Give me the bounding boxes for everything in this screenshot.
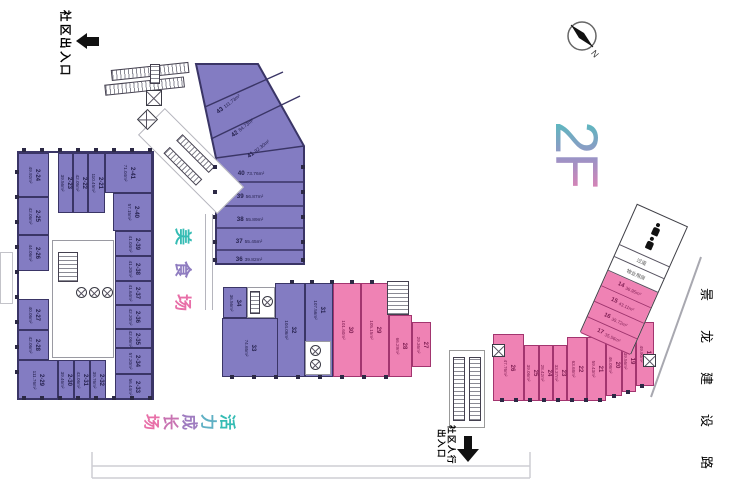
down-arrow-icon [457,449,479,462]
unit-32[interactable]: 32104.06m² [275,283,305,377]
left-arrow-icon [86,37,99,46]
unit-2-40[interactable]: 2-4057.15m² [113,193,152,231]
unit-24[interactable]: 2428.42m² [539,345,553,401]
pillar [15,345,19,349]
floor-title: 2F [535,112,619,196]
unit-number: 15 [610,297,619,305]
pillar [22,396,26,400]
pillar [15,195,19,199]
pillar [15,170,19,174]
unit-2-32[interactable]: 2-3239.76m² [90,360,106,399]
unit-2-36[interactable]: 2-3642.20m² [115,305,152,329]
pillar [148,148,152,152]
unit-2-41[interactable]: 2-4171.04m² [105,153,152,193]
escalator-bottom [449,350,485,428]
unit-34[interactable]: 3436.56m² [223,287,247,318]
pillar [514,398,518,402]
pillar [296,375,300,379]
pillar [640,384,644,388]
pillar [130,396,134,400]
elevator-icon [492,344,505,357]
pillar [500,398,504,402]
unit-2-21[interactable]: 2-21110.45m² [88,153,105,213]
left-arrow-icon [76,33,87,49]
unit-30[interactable]: 30101.60m² [333,283,361,377]
unit-33[interactable]: 3374.65m² [222,318,278,377]
pillar [362,375,366,379]
elevator-icon [102,287,113,298]
unit-2-35[interactable]: 2-3542.06m² [115,329,152,348]
pillar [94,148,98,152]
pillar [15,370,19,374]
unit-area: 35.56m² [604,332,621,343]
elevator-icon [262,296,273,307]
elevator-icon [76,287,87,298]
unit-2-27[interactable]: 2-2740.06m² [18,299,49,330]
pillar [76,396,80,400]
unit-2-34[interactable]: 2-3457.20m² [115,348,152,374]
unit-2-28[interactable]: 2-2842.06m² [18,330,49,360]
unit-29[interactable]: 29105.15m² [361,283,389,377]
unit-22[interactable]: 2263.68m² [567,337,587,401]
unit-area: 43.11m² [618,301,635,312]
pillar [15,270,19,274]
unit-36[interactable]: 3639.82m² [236,248,263,266]
unit-42[interactable]: 4284.73m² [225,111,257,141]
pillar [40,396,44,400]
elevator-icon [643,354,656,367]
pillar [318,375,322,379]
unit-2-30[interactable]: 2-3039.46m² [58,360,74,399]
elevator-icon [146,90,162,106]
unit-40[interactable]: 4073.76m² [238,162,265,180]
pillar [626,390,630,394]
pillar [112,148,116,152]
unit-37[interactable]: 3755.45m² [236,230,263,248]
unit-25[interactable]: 2539.06m² [524,345,539,401]
corridor-line [205,214,206,310]
pillar [570,398,574,402]
pillar [76,148,80,152]
pillar [112,396,116,400]
unit-2-38[interactable]: 2-3841.20m² [115,256,152,281]
unit-area: 36.95m² [625,285,642,296]
pillar [58,148,62,152]
pillar [213,240,217,244]
pillar [148,396,152,400]
pillar [330,280,334,284]
down-arrow-icon [464,436,472,449]
center-stair-b [387,281,409,315]
site-edge-box [0,252,13,304]
pillar [542,398,546,402]
pillar [22,148,26,152]
unit-2-25[interactable]: 2-2542.06m² [18,197,49,235]
unit-2-26[interactable]: 2-2644.06m² [18,235,49,271]
pillar [213,190,217,194]
unit-area: 35.72m² [611,316,628,327]
unit-38[interactable]: 3855.89m² [237,208,264,226]
pillar [290,280,294,284]
unit-2-31[interactable]: 2-3143.06m² [74,360,90,399]
pillar [230,375,234,379]
stair-icon [250,291,260,314]
floor-plan-2f: N 1849.90m²1939.56m²2046.08m²2159.43m²22… [0,0,733,488]
pillar [301,240,305,244]
unit-41[interactable]: 4192.30m² [241,132,273,162]
pillar [213,258,217,262]
unit-2-39[interactable]: 2-3941.04m² [115,231,152,256]
pillar [301,190,305,194]
unit-21[interactable]: 2159.43m² [587,337,606,401]
pillar [15,295,19,299]
unit-2-23[interactable]: 2-2339.56m² [58,153,73,213]
stair-icon [150,64,160,84]
pillar [528,398,532,402]
pillar [370,280,374,284]
pillar [310,280,314,284]
elevator-icon [89,287,100,298]
unit-number: 16 [603,312,612,320]
pillar [584,398,588,402]
restroom-person-icon [644,235,656,250]
pillar [340,375,344,379]
pillar [384,375,388,379]
pillar [252,375,256,379]
pillar [94,396,98,400]
unit-28[interactable]: 2866.29m² [389,315,412,377]
pillar [274,375,278,379]
unit-2-37[interactable]: 2-3741.64m² [115,281,152,305]
unit-2-22[interactable]: 2-2242.05m² [73,153,88,213]
unit-2-29[interactable]: 2-29111.76m² [18,360,58,399]
pillar [15,245,19,249]
elevator-icon [310,359,321,370]
pillar [130,148,134,152]
pillar [598,398,602,402]
pillar [58,396,62,400]
unit-23[interactable]: 2333.37m² [553,345,567,401]
corridor-room-label: 过道 [636,256,648,266]
elevator-icon [310,345,321,356]
pillar [556,398,560,402]
pillar [612,394,616,398]
corridor-line [212,214,213,310]
unit-27[interactable]: 2729.36m² [412,322,431,367]
pillar [301,165,305,169]
pillar [40,148,44,152]
unit-2-24[interactable]: 2-2449.92m² [18,153,49,197]
pillar [15,220,19,224]
pillar [301,215,305,219]
unit-number: 17 [596,328,605,336]
pillar [350,280,354,284]
restroom-person-icon [651,221,663,236]
unit-number: 14 [617,281,626,289]
pillar [213,215,217,219]
pillar [301,258,305,262]
pillar [213,165,217,169]
unit-43[interactable]: 43111.73m² [210,86,244,118]
pillar [15,320,19,324]
stair-icon [58,252,78,282]
